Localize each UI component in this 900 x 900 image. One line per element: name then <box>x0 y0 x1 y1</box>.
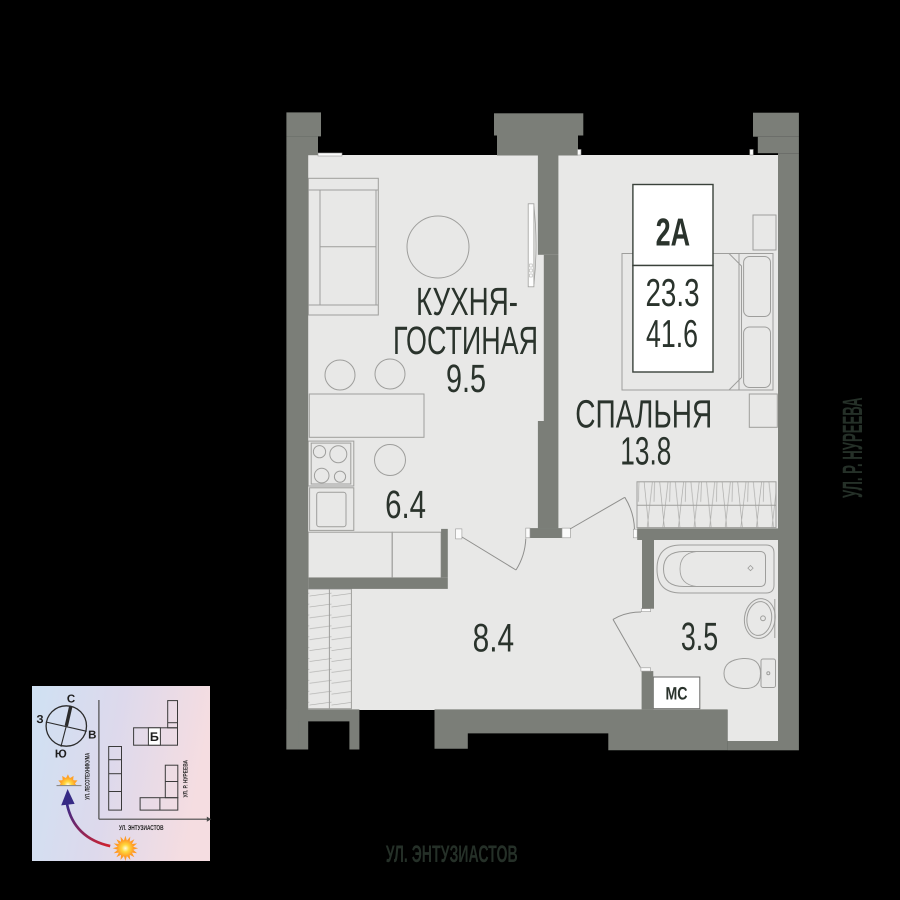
svg-text:КУХНЯ-: КУХНЯ- <box>416 280 518 324</box>
svg-text:МС: МС <box>666 684 688 704</box>
svg-text:13.8: 13.8 <box>620 430 671 474</box>
svg-text:С: С <box>67 694 75 706</box>
svg-text:УЛ. ЛЕСОТЕХНИКУМА: УЛ. ЛЕСОТЕХНИКУМА <box>85 753 92 800</box>
svg-text:Б: Б <box>150 730 159 744</box>
svg-text:З: З <box>36 714 43 726</box>
svg-text:В: В <box>88 730 96 742</box>
svg-text:УЛ. Р. НУРЕЕВА: УЛ. Р. НУРЕЕВА <box>837 397 868 498</box>
svg-text:8.4: 8.4 <box>473 616 515 660</box>
svg-text:УЛ. ЭНТУЗИАСТОВ: УЛ. ЭНТУЗИАСТОВ <box>386 841 518 868</box>
svg-text:6.4: 6.4 <box>385 483 426 527</box>
svg-text:3.5: 3.5 <box>681 615 718 659</box>
svg-text:41.6: 41.6 <box>646 313 698 356</box>
svg-text:УЛ. ЭНТУЗИАСТОВ: УЛ. ЭНТУЗИАСТОВ <box>119 825 164 832</box>
svg-text:УЛ. Р. НУРЕЕВА: УЛ. Р. НУРЕЕВА <box>183 760 190 798</box>
svg-text:Ю: Ю <box>55 749 67 761</box>
svg-text:9.5: 9.5 <box>446 357 486 401</box>
svg-text:23.3: 23.3 <box>646 272 700 315</box>
svg-text:2А: 2А <box>656 212 691 255</box>
